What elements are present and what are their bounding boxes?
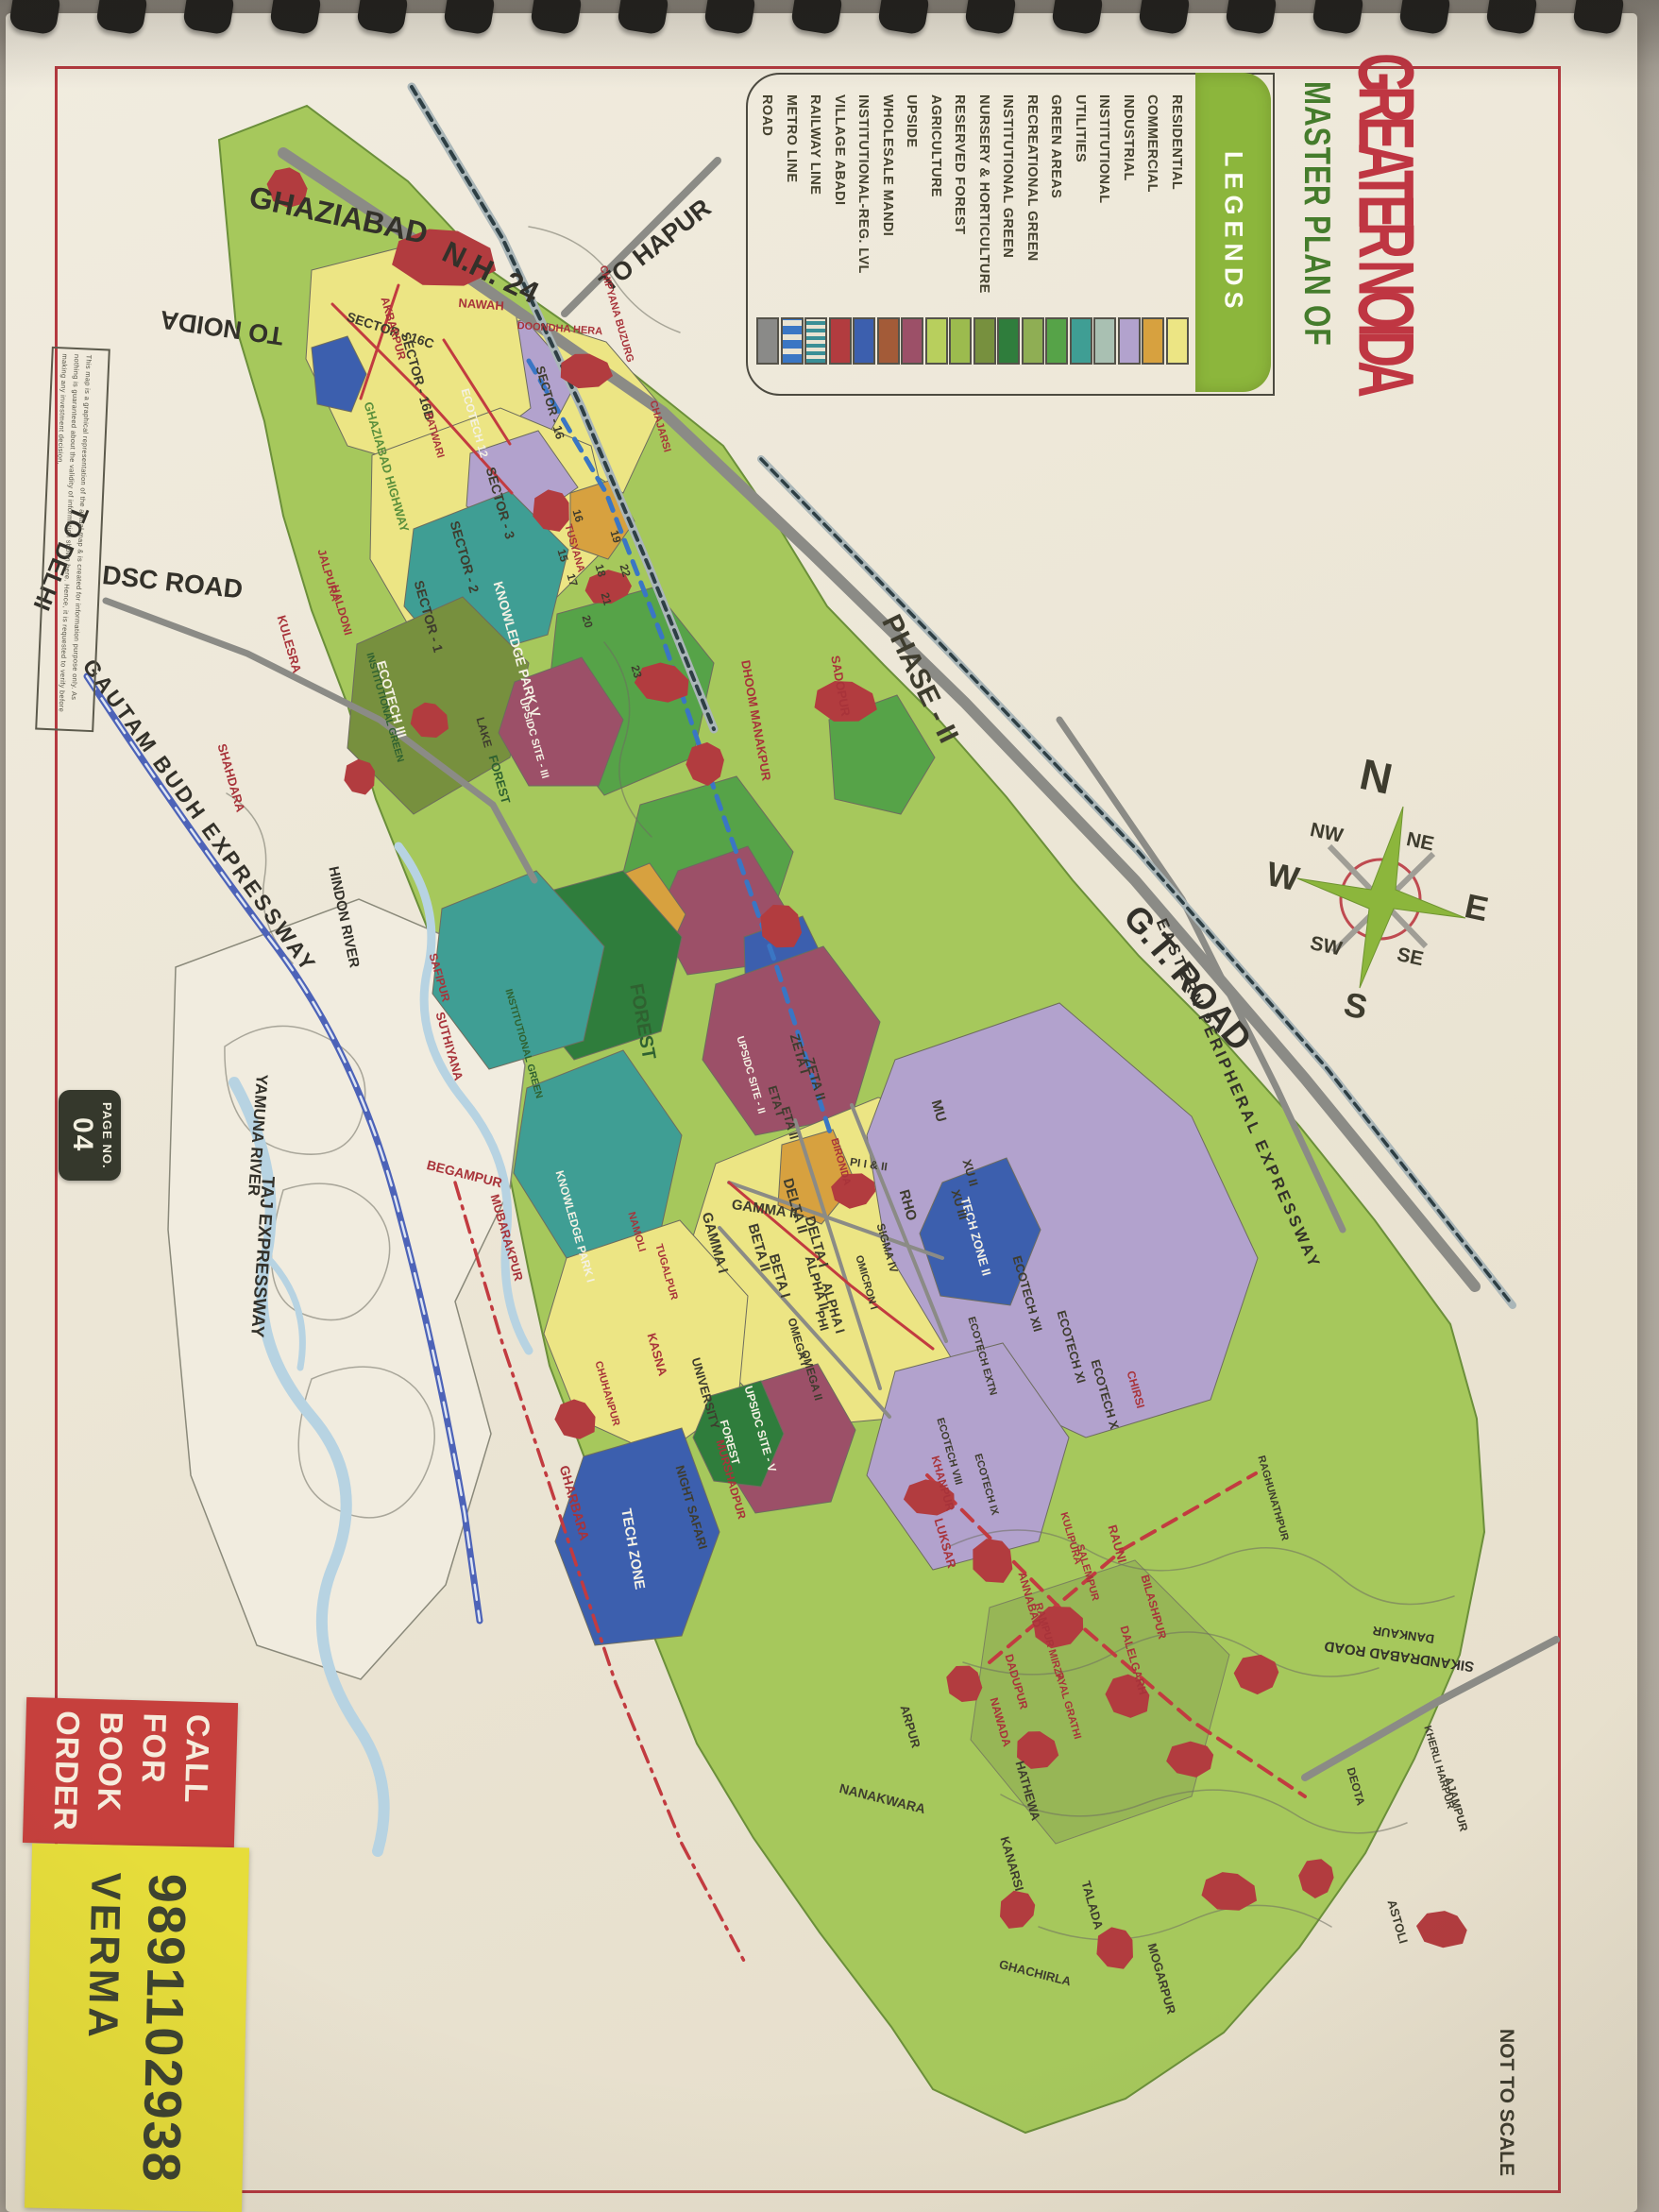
legend-item-label: INSTITUTIONAL-REG. LVL <box>855 94 871 274</box>
legend-item-label: UPSIDE <box>904 94 919 147</box>
legend-item-label: RECREATIONAL GREEN <box>1024 94 1040 262</box>
sticker-word: ORDER <box>46 1710 86 1832</box>
legend-swatch-railway <box>804 317 827 365</box>
legend-item-label: NURSERY & HORTICULTURE <box>976 94 991 294</box>
legend-swatch <box>1166 317 1189 365</box>
photo-of-spiral-map-book: LEGENDS RESIDENTIAL COMMERCIAL INDUSTRIA… <box>0 0 1659 2212</box>
page-number-badge: PAGE NO.04 <box>59 1090 121 1181</box>
legend-swatch <box>949 317 972 365</box>
legend-item-label: METRO LINE <box>784 94 799 182</box>
legend-item-label: INDUSTRIAL <box>1121 94 1136 181</box>
legend-swatch <box>973 317 996 365</box>
legend-swatch <box>1070 317 1092 365</box>
village-label: NAWAH <box>458 297 504 313</box>
sticker-word: FOR <box>135 1712 173 1784</box>
sticker-word: BOOK <box>91 1711 129 1812</box>
page-number-label: PAGE NO. <box>99 1102 114 1169</box>
legend-title: LEGENDS <box>1219 151 1248 315</box>
legend-item-label: WHOLESALE MANDI <box>880 94 895 236</box>
legend-item-label: COMMERCIAL <box>1144 94 1160 193</box>
legend-banner: LEGENDS <box>1195 73 1271 392</box>
seller-name: VERMA <box>79 1872 129 2042</box>
legend-swatch <box>901 317 923 365</box>
legend-swatch <box>1045 317 1068 365</box>
legend-item-label: INSTITUTIONAL <box>1096 94 1111 204</box>
phone-number: 9891102938 <box>132 1873 198 2185</box>
map-title-prefix: MASTER PLAN OF <box>1297 81 1336 347</box>
legend-item-label: VILLAGE ABADI <box>832 94 847 205</box>
not-to-scale-note: NOT TO SCALE <box>1496 2029 1516 2176</box>
legend-item-label: INSTITUTIONAL GREEN <box>1000 94 1015 258</box>
map-title: GREATER NOIDA <box>1345 53 1427 391</box>
sticker-word: CALL <box>178 1714 216 1805</box>
legend-swatch <box>877 317 900 365</box>
legend-item-label: ROAD <box>759 94 774 136</box>
legend-swatch <box>1142 317 1164 365</box>
legend-item-label: RAILWAY LINE <box>807 94 822 195</box>
legend-swatch <box>1118 317 1141 365</box>
legend-swatch <box>756 317 779 365</box>
seller-sticker-red: CALLFORBOOKORDER <box>23 1697 238 1848</box>
legend-item-label: RESIDENTIAL <box>1169 94 1184 190</box>
legend-swatch <box>853 317 875 365</box>
legend-swatch <box>997 317 1020 365</box>
legend-swatch <box>925 317 948 365</box>
seller-sticker-yellow: 9891102938VERMA <box>25 1844 249 2212</box>
page-number-value: 04 <box>65 1102 99 1169</box>
legend-item-label: UTILITIES <box>1073 94 1088 162</box>
legend-swatch <box>1093 317 1116 365</box>
legend-item-label: GREEN AREAS <box>1048 94 1063 198</box>
legend-item-label: AGRICULTURE <box>928 94 943 197</box>
disclaimer-text: This map is a graphical representation o… <box>42 353 93 724</box>
legend-swatch-metro <box>781 317 804 365</box>
legend-item-label: RESERVED FOREST <box>952 94 967 234</box>
legend-swatch <box>829 317 852 365</box>
legend-swatch <box>1022 317 1044 365</box>
